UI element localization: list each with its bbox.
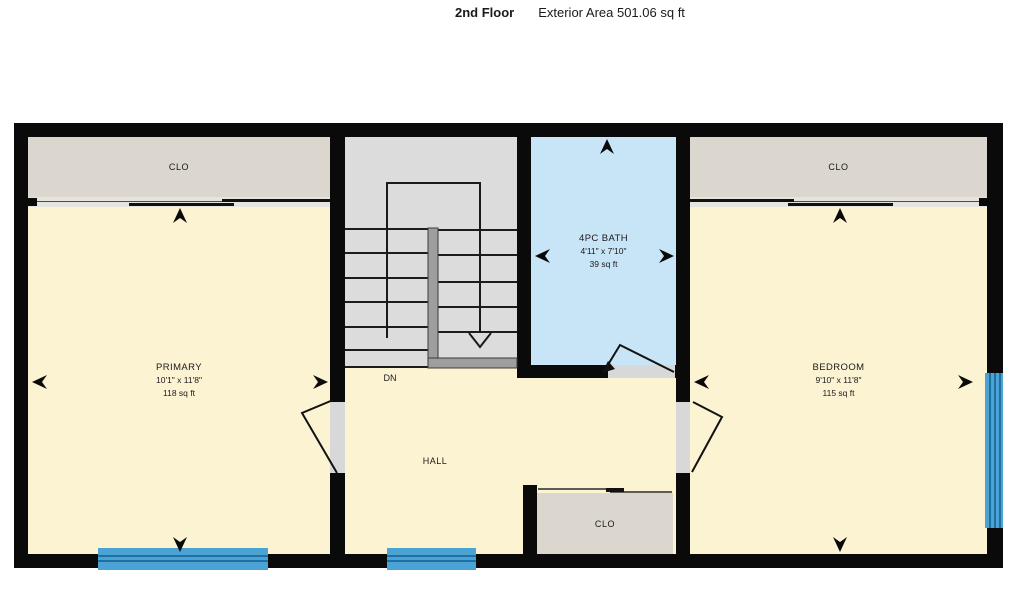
door-opening-bath [608, 365, 675, 378]
window [98, 548, 268, 570]
room-label: CLO [595, 519, 615, 529]
door-jamb [28, 198, 37, 206]
window [387, 548, 476, 570]
door-opening-primary [330, 402, 345, 473]
sliding-door-right [690, 197, 987, 207]
room-label: BEDROOM 9'10" x 11'8" 115 sq ft [813, 361, 865, 400]
window [985, 373, 1003, 528]
room-name: PRIMARY [156, 361, 202, 374]
room-dimensions: 9'10" x 11'8" [813, 374, 865, 387]
window-pane-line [387, 555, 476, 557]
room-area: 39 sq ft [579, 258, 628, 271]
door-jamb [979, 198, 987, 206]
door-opening-bedroom [676, 402, 690, 473]
closet-hall-wall [523, 485, 537, 554]
room-area: 118 sq ft [156, 387, 202, 400]
stairs-dn-label: DN [366, 373, 414, 383]
room-label: 4PC BATH 4'11" x 7'10" 39 sq ft [579, 232, 628, 271]
hall-label: HALL [405, 456, 465, 466]
closet-right: CLO [690, 137, 987, 197]
room-label: CLO [828, 162, 848, 172]
room-area: 115 sq ft [813, 387, 865, 400]
window-pane-line [387, 560, 476, 562]
sliding-door-panel [690, 199, 794, 202]
sliding-door-left [28, 197, 330, 207]
room-bath: 4PC BATH 4'11" x 7'10" 39 sq ft [531, 137, 676, 365]
window-pane-line [989, 373, 991, 528]
room-dimensions: 4'11" x 7'10" [579, 245, 628, 258]
floor-plan: CLO PRIMARY 10'1" x 11'8" 118 sq ft 4PC … [14, 123, 1003, 568]
sliding-door-panel [129, 203, 234, 206]
window-pane-line [999, 373, 1001, 528]
room-primary: PRIMARY 10'1" x 11'8" 118 sq ft [28, 207, 330, 554]
sliding-door-panel [788, 203, 893, 206]
window-pane-line [98, 560, 268, 562]
room-name: BEDROOM [813, 361, 865, 374]
window-pane-line [98, 555, 268, 557]
room-label: PRIMARY 10'1" x 11'8" 118 sq ft [156, 361, 202, 400]
floor-label: 2nd Floor [455, 5, 514, 20]
room-name: 4PC BATH [579, 232, 628, 245]
exterior-area-label: Exterior Area 501.06 sq ft [538, 5, 685, 20]
room-dimensions: 10'1" x 11'8" [156, 374, 202, 387]
window-pane-line [994, 373, 996, 528]
sliding-door-panel [222, 199, 330, 202]
floorplan-page: 2nd FloorExterior Area 501.06 sq ft CLO … [0, 0, 1024, 601]
closet-hall: CLO [537, 493, 673, 554]
floorplan-title: 2nd FloorExterior Area 501.06 sq ft [455, 5, 685, 20]
closet-left: CLO [28, 137, 330, 197]
stairs-area [345, 137, 517, 368]
room-label: CLO [169, 162, 189, 172]
room-bedroom: BEDROOM 9'10" x 11'8" 115 sq ft [690, 207, 987, 554]
